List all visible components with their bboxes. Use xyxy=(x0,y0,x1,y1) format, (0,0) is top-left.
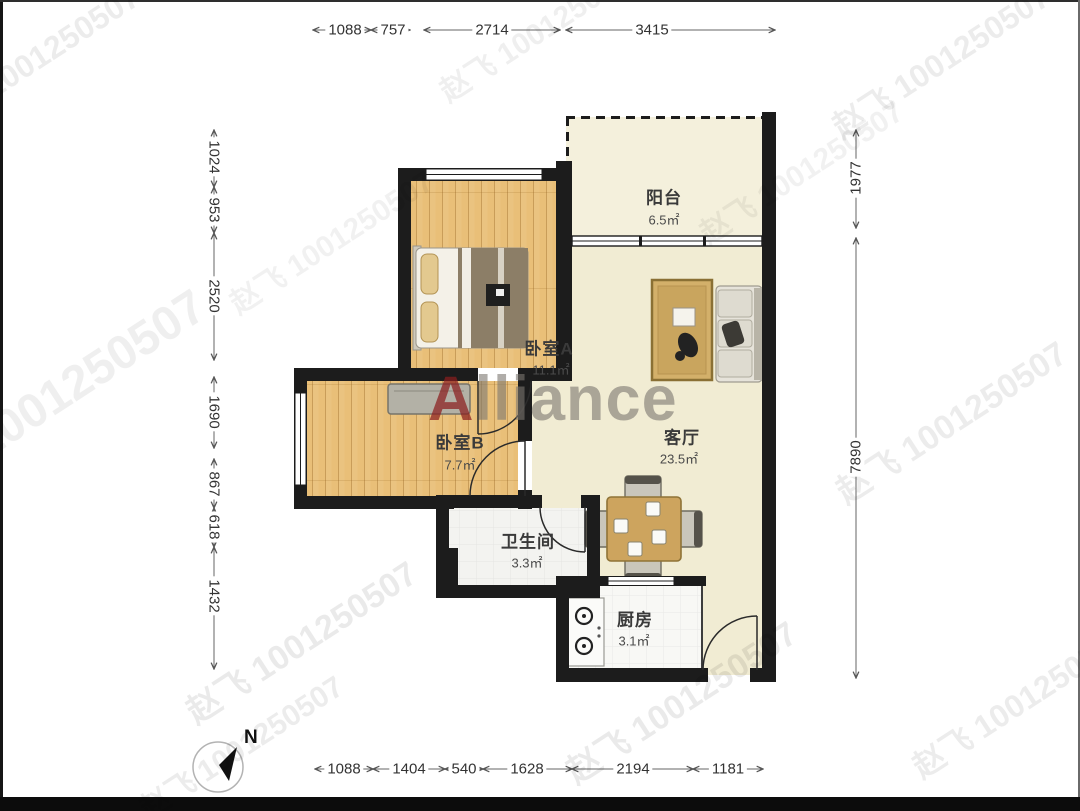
pillow xyxy=(421,254,438,294)
dim-right-1: 1977 xyxy=(847,158,864,197)
dim-left-4: 1690 xyxy=(205,392,222,431)
room-area-bedroomA: 11.1㎡ xyxy=(532,360,569,379)
dim-bottom-3: 540 xyxy=(448,760,479,777)
dim-bottom-4: 1628 xyxy=(507,760,546,777)
brand-rest: lliance xyxy=(475,364,678,434)
room-area-living: 23.5㎡ xyxy=(660,449,698,468)
room-area-bedroomB: 7.7㎡ xyxy=(444,455,475,474)
dim-left-5: 867 xyxy=(205,468,222,499)
dim-left-3: 2520 xyxy=(205,276,222,315)
dim-top-3: 2714 xyxy=(472,21,511,38)
brand-letter-a: A xyxy=(428,364,475,434)
kitchen-pass-window xyxy=(608,577,674,586)
dim-right-2: 7890 xyxy=(847,437,864,476)
room-area-balcony: 6.5㎡ xyxy=(648,210,679,229)
dim-left-1: 1024 xyxy=(205,137,222,176)
dim-top-1: 1088 xyxy=(325,21,364,38)
room-label-balcony: 阳台 xyxy=(646,184,682,209)
compass-north-label: N xyxy=(244,727,258,749)
magazine xyxy=(673,308,695,326)
room-label-living: 客厅 xyxy=(664,424,700,449)
dim-bottom-1: 1088 xyxy=(324,760,363,777)
dim-bottom-5: 2194 xyxy=(613,760,652,777)
dim-bottom-6: 1181 xyxy=(709,760,747,777)
dim-left-6: 618 xyxy=(205,511,222,542)
bedroomA-window xyxy=(426,169,542,180)
sofa xyxy=(716,286,762,382)
room-area-kitchen: 3.1㎡ xyxy=(618,631,649,650)
bedroomB-window xyxy=(295,393,306,485)
pillow xyxy=(421,302,438,342)
dim-top-2: 757 xyxy=(377,21,408,38)
room-area-bathroom: 3.3㎡ xyxy=(511,553,542,572)
room-label-bedroomB: 卧室B xyxy=(435,429,484,454)
dim-left-2: 953 xyxy=(205,194,222,225)
dim-bottom-2: 1404 xyxy=(389,760,428,777)
room-label-bedroomA: 卧室A xyxy=(524,335,573,360)
dim-top-4: 3415 xyxy=(632,21,671,38)
floorplan-screenshot: 赵飞 1001250507 赵飞 1001250507 赵飞 100125050… xyxy=(0,0,1080,811)
room-label-bathroom: 卫生间 xyxy=(501,528,555,553)
kitchen-stove xyxy=(566,598,604,666)
room-label-kitchen: 厨房 xyxy=(617,606,653,631)
dim-left-7: 1432 xyxy=(205,576,222,615)
bed-bedroomA xyxy=(413,246,528,350)
